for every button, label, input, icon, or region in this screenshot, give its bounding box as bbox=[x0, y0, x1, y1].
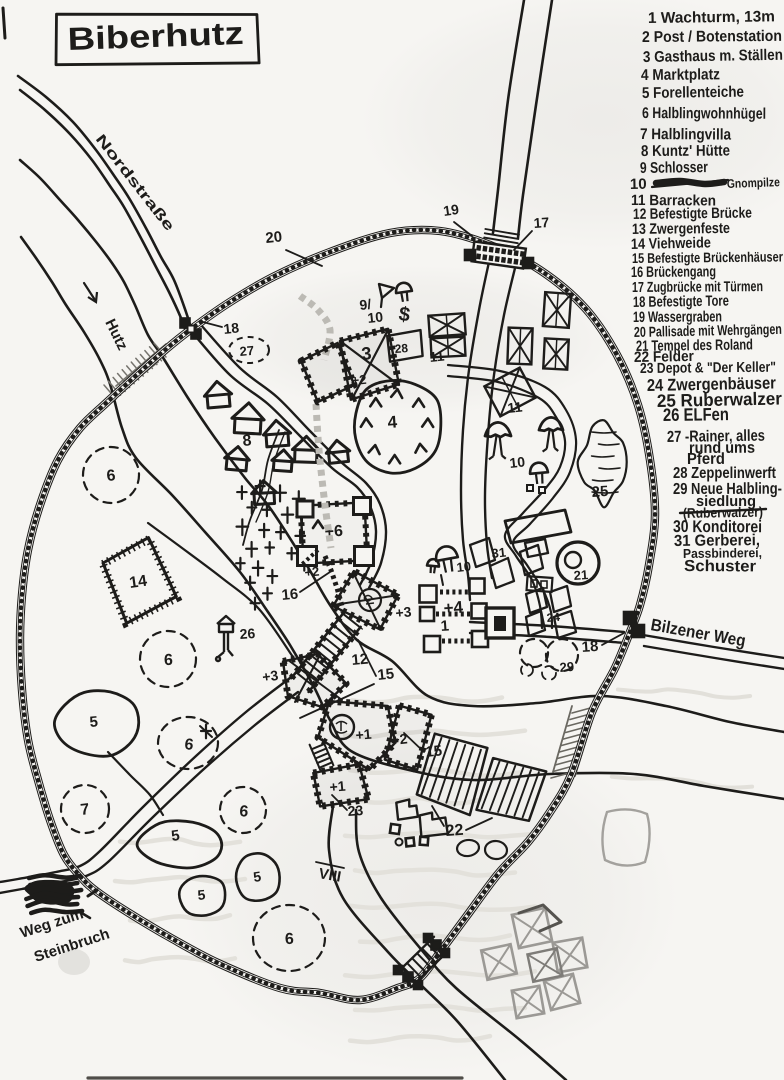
svg-text:8: 8 bbox=[242, 432, 252, 450]
svg-text:23: 23 bbox=[347, 802, 364, 819]
svg-text:4 Marktplatz: 4 Marktplatz bbox=[641, 66, 720, 84]
svg-text:+2: +2 bbox=[351, 372, 367, 388]
svg-text:6: 6 bbox=[239, 803, 249, 821]
svg-text:6 Halblingwohnhügel: 6 Halblingwohnhügel bbox=[642, 105, 766, 123]
svg-text:Biberhutz: Biberhutz bbox=[67, 15, 244, 57]
svg-text:20: 20 bbox=[265, 228, 283, 247]
svg-text:26: 26 bbox=[239, 625, 256, 642]
svg-text:5: 5 bbox=[197, 886, 206, 903]
svg-text:3: 3 bbox=[361, 343, 373, 364]
svg-text:+4: +4 bbox=[443, 598, 464, 618]
svg-text:19: 19 bbox=[442, 201, 460, 219]
svg-text:+3: +3 bbox=[395, 603, 413, 621]
svg-text:1 Wachturm, 13m: 1 Wachturm, 13m bbox=[648, 8, 775, 27]
svg-text:24: 24 bbox=[546, 610, 561, 625]
svg-text:Schuster: Schuster bbox=[684, 558, 756, 575]
svg-text:11: 11 bbox=[507, 399, 524, 416]
svg-text:5: 5 bbox=[89, 713, 99, 731]
svg-text:6: 6 bbox=[106, 467, 116, 485]
svg-text:16 Brückengang: 16 Brückengang bbox=[631, 263, 716, 281]
svg-text:9 Schlosser: 9 Schlosser bbox=[640, 159, 708, 177]
svg-text:+2: +2 bbox=[391, 730, 409, 748]
svg-text:14: 14 bbox=[128, 573, 148, 592]
svg-text:10: 10 bbox=[367, 308, 384, 326]
svg-text:28 Zeppelinwerft: 28 Zeppelinwerft bbox=[673, 465, 777, 482]
svg-text:18: 18 bbox=[223, 319, 240, 337]
svg-text:28: 28 bbox=[394, 341, 409, 356]
svg-text:18: 18 bbox=[581, 638, 599, 656]
svg-text:4: 4 bbox=[387, 412, 398, 432]
svg-text:6: 6 bbox=[285, 931, 294, 948]
svg-text:Gnompilze: Gnompilze bbox=[727, 175, 780, 191]
svg-text:29: 29 bbox=[559, 659, 575, 675]
svg-text:6: 6 bbox=[164, 652, 173, 669]
svg-text:7 Halblingvilla: 7 Halblingvilla bbox=[640, 126, 731, 144]
svg-text:8 Kuntz' Hütte: 8 Kuntz' Hütte bbox=[641, 142, 730, 160]
svg-text:+1: +1 bbox=[329, 778, 347, 795]
svg-text:+1: +1 bbox=[355, 726, 373, 743]
svg-text:3 Gasthaus m. Ställen: 3 Gasthaus m. Ställen bbox=[643, 47, 783, 66]
svg-text:16: 16 bbox=[281, 586, 299, 604]
svg-text:27: 27 bbox=[239, 343, 255, 359]
svg-text:11: 11 bbox=[429, 348, 446, 365]
svg-text:15: 15 bbox=[377, 665, 395, 684]
svg-text:31: 31 bbox=[491, 545, 507, 561]
svg-text:21: 21 bbox=[573, 567, 588, 583]
svg-text:+3: +3 bbox=[261, 667, 279, 685]
svg-text:10: 10 bbox=[630, 176, 647, 193]
svg-text:1: 1 bbox=[440, 617, 450, 635]
svg-text:10: 10 bbox=[509, 453, 526, 471]
svg-text:10: 10 bbox=[456, 559, 472, 575]
svg-text:5 Forellenteiche: 5 Forellenteiche bbox=[642, 84, 745, 102]
svg-text:26 ELFen: 26 ELFen bbox=[663, 404, 729, 425]
svg-text:2 Post / Botenstation: 2 Post / Botenstation bbox=[642, 28, 782, 46]
svg-text:17: 17 bbox=[533, 214, 550, 231]
svg-text:+2: +2 bbox=[304, 564, 320, 580]
svg-text:12: 12 bbox=[351, 651, 369, 669]
svg-text:25: 25 bbox=[591, 483, 609, 501]
